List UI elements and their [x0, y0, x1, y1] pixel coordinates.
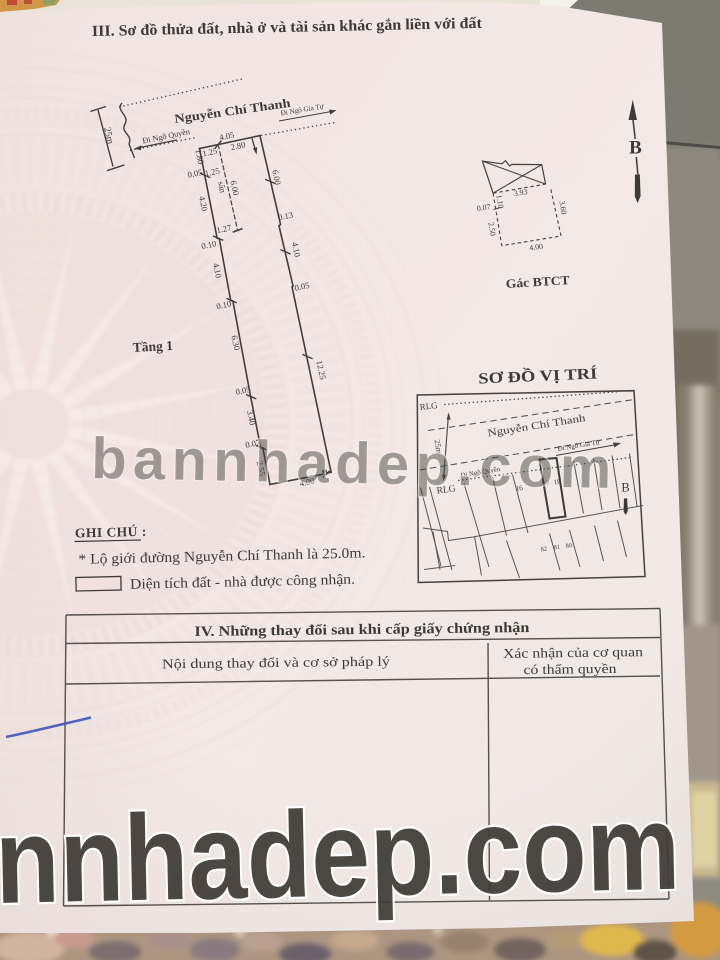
- svg-text:0.07: 0.07: [476, 202, 491, 213]
- svg-text:81: 81: [553, 544, 560, 552]
- svg-text:có thẩm quyền: có thẩm quyền: [523, 661, 616, 677]
- svg-text:Xác nhận của cơ quan: Xác nhận của cơ quan: [503, 644, 643, 661]
- svg-text:RLG: RLG: [419, 400, 438, 412]
- svg-text:4.00: 4.00: [529, 242, 544, 253]
- svg-text:Tầng 1: Tầng 1: [132, 338, 173, 355]
- svg-text:3.93: 3.93: [513, 187, 528, 198]
- svg-text:B: B: [629, 138, 642, 159]
- svg-text:80: 80: [565, 542, 572, 550]
- svg-text:Nội dung thay đổi và cơ sở phá: Nội dung thay đổi và cơ sở pháp lý: [162, 654, 390, 672]
- svg-text:GHI CHÚ :: GHI CHÚ :: [75, 524, 147, 541]
- svg-text:82: 82: [540, 546, 547, 554]
- svg-text:B: B: [621, 481, 629, 495]
- svg-text:nnhadep.com: nnhadep.com: [0, 779, 681, 929]
